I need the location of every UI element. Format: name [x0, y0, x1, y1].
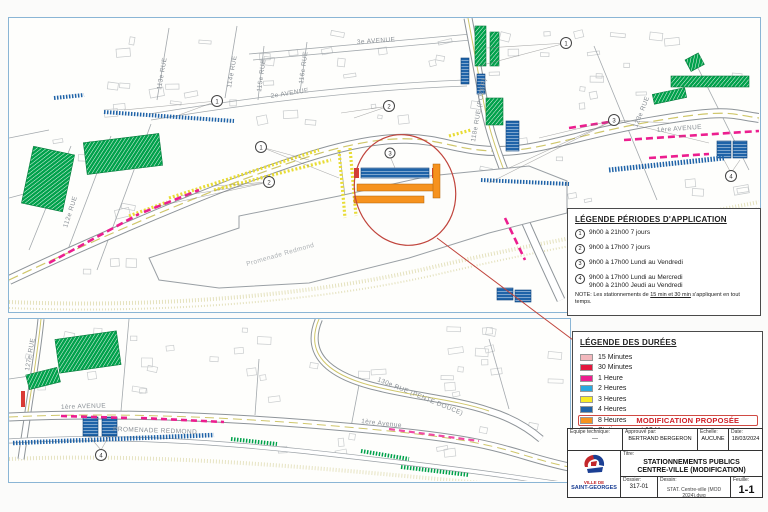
- duration-row: 15 Minutes: [580, 352, 755, 363]
- city-logo: VILLE DE SAINT-GEORGES: [567, 450, 621, 498]
- riverbank: [9, 458, 569, 481]
- color-swatch: [580, 385, 593, 392]
- legend-durations-title: LÉGENDE DES DURÉES: [580, 338, 755, 347]
- duration-row-modification: 8 Heures MODIFICATION PROPOSÉE: [580, 415, 755, 426]
- field-titre: Titre: STATIONNEMENTS PUBLICSCENTRE-VILL…: [620, 450, 763, 477]
- legend-note: NOTE: Les stationnements de 15 min et 30…: [575, 292, 753, 305]
- period-markers: 4: [96, 450, 107, 461]
- bottom-map-drawing: 4 127e RUE 1ère AVENUE PROMENADE REDMOND…: [9, 319, 569, 481]
- period-item: 2 9h00 à 17h00 7 jours: [575, 244, 753, 254]
- parking-lots-blue: [83, 417, 117, 436]
- duration-row: 4 Heures: [580, 405, 755, 416]
- period-item: 1 9h00 à 21h00 7 jours: [575, 229, 753, 239]
- color-swatch: [580, 354, 593, 361]
- duration-row: 2 Heures: [580, 384, 755, 395]
- duration-row: 30 Minutes: [580, 363, 755, 374]
- modification-outline: [578, 415, 758, 426]
- period-number-icon: 4: [575, 274, 585, 284]
- title-block: Équipe technique:--- Approuvé par:BERTRA…: [567, 428, 763, 498]
- field-date: Date:18/03/2024: [728, 428, 763, 451]
- svg-text:1ère AVENUE: 1ère AVENUE: [657, 124, 703, 134]
- field-dessin: Dessin:STAT. Centre-ville (MOD 2024).dwg: [657, 476, 731, 498]
- period-number-icon: 3: [575, 259, 585, 269]
- duration-row: 1 Heure: [580, 373, 755, 384]
- svg-text:115e RUE: 115e RUE: [256, 59, 268, 93]
- svg-text:2e AVENUE: 2e AVENUE: [270, 87, 309, 100]
- period-item: 3 9h00 à 17h00 Lundi au Vendredi: [575, 259, 753, 269]
- svg-text:1ère AVENUE: 1ère AVENUE: [61, 402, 107, 411]
- svg-text:3e AVENUE: 3e AVENUE: [357, 36, 396, 46]
- field-equipe: Équipe technique:---: [567, 428, 623, 451]
- period-text: 9h00 à 17h00 Lundi au Vendredi: [589, 259, 683, 267]
- rue-130: [315, 319, 541, 439]
- period-text: 9h00 à 21h00 7 jours: [589, 229, 650, 237]
- color-swatch: [580, 375, 593, 382]
- period-text: 9h00 à 17h00 Lundi au Mercredi 9h00 à 21…: [589, 274, 683, 289]
- field-echelle: Échelle:AUCUNE: [697, 428, 729, 451]
- field-approuve: Approuvé par:BERTRAND BERGERON: [622, 428, 698, 451]
- legend-periods-title: LÉGENDE PÉRIODES D'APPLICATION: [575, 215, 753, 224]
- svg-text:113e RUE: 113e RUE: [156, 57, 169, 91]
- saint-georges-logo-icon: [579, 453, 609, 475]
- period-number-icon: 1: [575, 229, 585, 239]
- color-swatch: [580, 406, 593, 413]
- field-feuille: Feuille:1-1: [730, 476, 763, 498]
- color-swatch: [580, 396, 593, 403]
- bottom-map-panel: 4 127e RUE 1ère AVENUE PROMENADE REDMOND…: [8, 318, 571, 483]
- svg-text:PROMENADE REDMOND: PROMENADE REDMOND: [113, 426, 197, 436]
- period-item: 4 9h00 à 17h00 Lundi au Mercredi 9h00 à …: [575, 274, 753, 289]
- field-dossier: Dossier:317-01: [620, 476, 658, 498]
- period-text: 9h00 à 17h00 7 jours: [589, 244, 650, 252]
- color-swatch: [580, 364, 593, 371]
- duration-row: 3 Heures: [580, 394, 755, 405]
- legend-periods: LÉGENDE PÉRIODES D'APPLICATION 1 9h00 à …: [567, 208, 761, 316]
- svg-text:114e RUE: 114e RUE: [226, 55, 239, 89]
- period-number-icon: 2: [575, 244, 585, 254]
